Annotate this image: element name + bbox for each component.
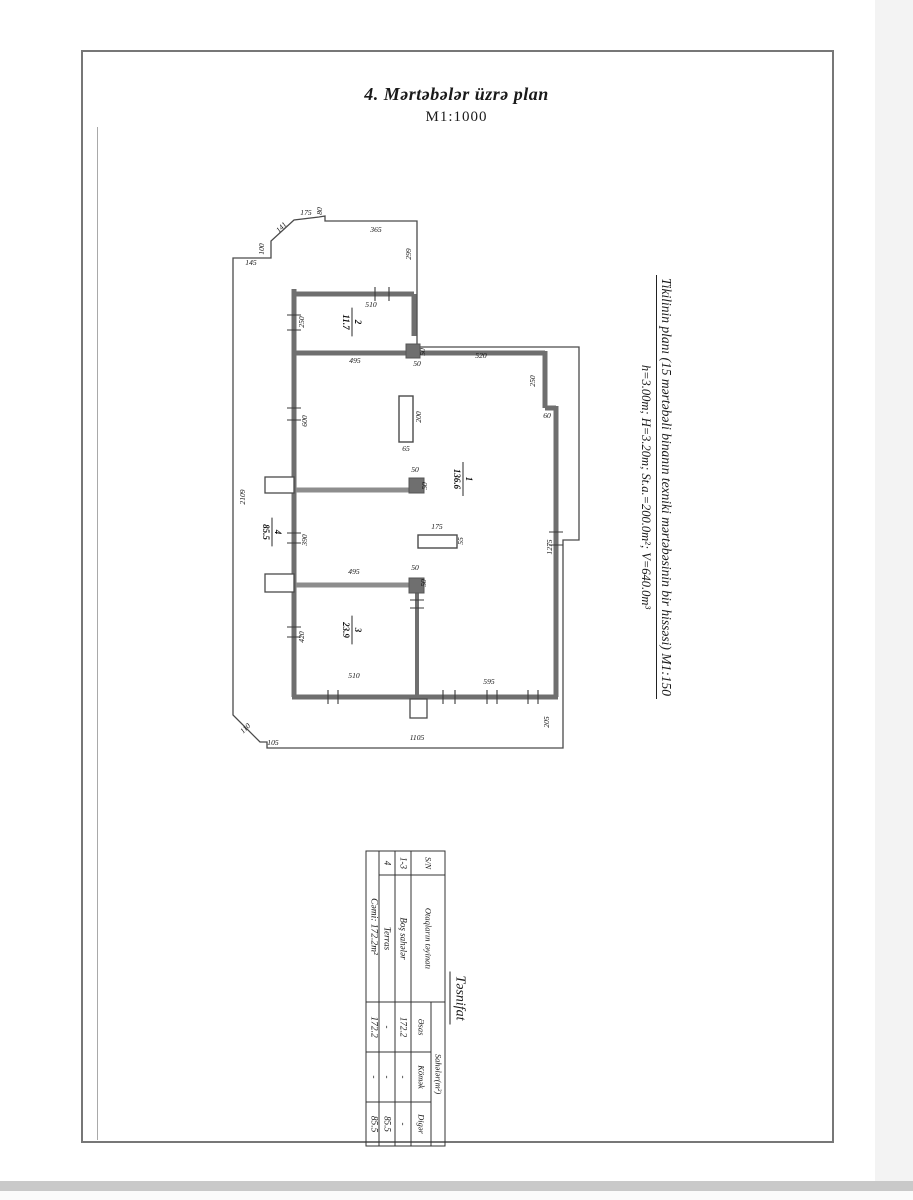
row-aux: - [379, 1052, 395, 1102]
table-total-row: Cəmi: 172.2m² 172.2 - 85.5 [366, 851, 379, 1146]
header-sn: S/N [411, 851, 445, 875]
room-label: 323.9 [341, 616, 363, 645]
dimension-label: 250 [297, 316, 306, 328]
dimension-label: 60 [543, 411, 551, 420]
row-main: - [379, 1002, 395, 1052]
header-areas: Sahələr(m²) [431, 1002, 445, 1146]
room-number: 2 [353, 319, 363, 325]
dimension-label: 520 [475, 351, 487, 360]
row-other: 85.5 [379, 1102, 395, 1146]
dimension-label: 600 [300, 415, 309, 427]
dimension-label: 55 [456, 537, 465, 545]
row-purpose: Boş sahələr [395, 875, 411, 1002]
row-aux: - [395, 1052, 411, 1102]
dimension-label: 365 [369, 225, 382, 234]
dimension-label: 50 [413, 359, 421, 368]
scan-margin-right [875, 0, 913, 1184]
dimension-label: 141 [274, 220, 288, 234]
caption-title: Tikilinin planı (15 mərtəbəli binanın te… [656, 232, 674, 742]
dimension-label: 175 [431, 522, 443, 531]
room-number: 1 [464, 477, 474, 482]
row-other: - [395, 1102, 411, 1146]
dimension-label: 50 [420, 482, 429, 490]
classification-table: S/N Otaqların təyinatı Sahələr(m²) Əsas … [366, 851, 446, 1147]
header-area-aux: Kömək [411, 1052, 431, 1102]
next-page-edge [0, 1191, 913, 1200]
room-area: 23.9 [341, 621, 351, 638]
caption-params: h=3.00m; H=3.20m; St.a.=200.0m²; V=640.0… [638, 232, 653, 742]
dimension-label: 50 [418, 348, 427, 356]
dimension-label: 50 [411, 465, 419, 474]
dimension-label: 510 [348, 671, 360, 680]
dimension-label: 1105 [410, 733, 425, 742]
dimension-label: 390 [300, 534, 309, 547]
dimension-label: 250 [528, 375, 537, 387]
dimension-label: 495 [349, 356, 361, 365]
dimension-label: 100 [257, 243, 266, 255]
room-area: 136.6 [452, 469, 462, 490]
dimension-label: 2109 [238, 489, 247, 504]
page-title: 4. Mərtəbələr üzrə plan [81, 84, 832, 105]
scanned-plan-page: { "page": { "title": "4. Mərtəbələr üzrə… [0, 0, 913, 1200]
total-main: 172.2 [366, 1002, 379, 1052]
row-purpose: Terras [379, 875, 395, 1002]
room-number: 4 [273, 529, 283, 535]
terrace-stubs [265, 477, 427, 718]
dimension-label: 299 [404, 248, 413, 260]
pillars [399, 396, 457, 548]
page-break-shadow [0, 1181, 913, 1191]
dimension-label: 495 [348, 567, 360, 576]
header-purpose: Otaqların təyinatı [411, 875, 445, 1002]
dimension-label: 65 [402, 444, 410, 453]
dimension-label: 1275 [545, 539, 554, 554]
page-scale: M1:1000 [81, 109, 832, 126]
total-other: 85.5 [366, 1102, 379, 1146]
dimension-label: 595 [483, 677, 495, 686]
room-label: 1136.6 [452, 462, 474, 496]
row-main: 172.2 [395, 1002, 411, 1052]
header-area-main: Əsas [411, 1002, 431, 1052]
dimension-label: 175 [300, 208, 312, 217]
table-title: Təsnifat [446, 851, 468, 1146]
row-sn: 1-3 [395, 851, 411, 875]
dimension-label: 510 [365, 300, 377, 309]
room-area: 85.5 [261, 524, 271, 540]
dimension-label: 50 [419, 579, 428, 587]
total-aux: - [366, 1052, 379, 1102]
total-label: Cəmi: 172.2m² [366, 851, 379, 1002]
row-sn: 4 [379, 851, 395, 875]
table-row: 1-3 Boş sahələr 172.2 - - [395, 851, 411, 1146]
dimension-label: 105 [267, 738, 279, 747]
room-area: 11.7 [341, 314, 351, 330]
dimension-label: 205 [542, 716, 551, 728]
dimension-label: 145 [245, 258, 257, 267]
drawing-caption: Tikilinin planı (15 mərtəbəli binanın te… [616, 232, 674, 742]
dimension-label: 200 [414, 411, 423, 423]
header-area-other: Digər [411, 1102, 431, 1146]
room-label: 211.7 [341, 308, 363, 337]
room-number: 3 [353, 627, 363, 633]
sheet-inner-frame-line [97, 127, 98, 1140]
dimension-label: 420 [297, 631, 306, 643]
classification-table-block: Təsnifat S/N Otaqların təyinatı Sahələr(… [368, 851, 468, 1146]
dimension-label: 80 [315, 207, 324, 215]
table-row: 4 Terras - - 85.5 [379, 851, 395, 1146]
floor-plan-drawing: 3651758014110014529951025049550505202506… [225, 195, 590, 775]
room-label: 485.5 [261, 518, 283, 547]
dimension-label: 50 [411, 563, 419, 572]
